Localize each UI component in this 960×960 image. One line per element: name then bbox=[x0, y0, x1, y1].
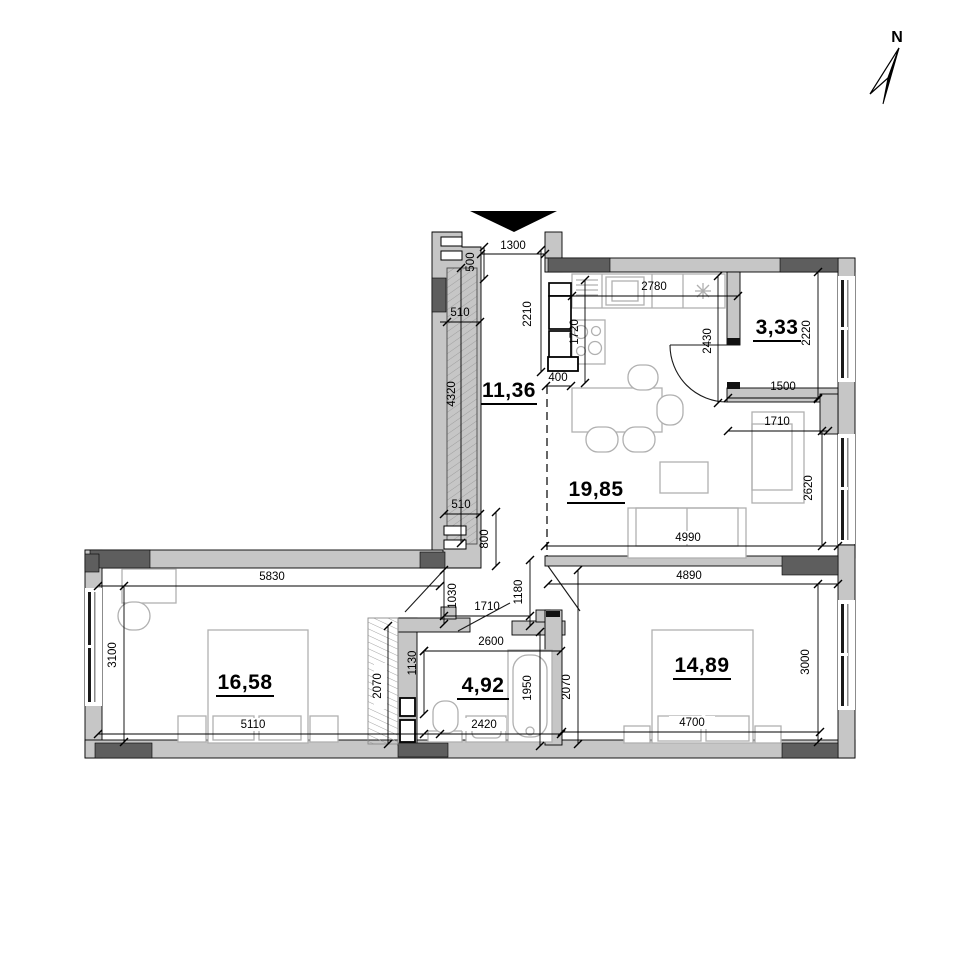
wall-dark-segment bbox=[782, 743, 838, 758]
svg-text:1300: 1300 bbox=[500, 240, 526, 252]
floor-plan: 1300 510 2780 1500 400 bbox=[0, 0, 960, 960]
wall-dark-segment bbox=[420, 552, 445, 568]
svg-text:800: 800 bbox=[479, 529, 491, 548]
wall-segment bbox=[820, 394, 838, 434]
desk-chair bbox=[118, 602, 150, 630]
dim-bath-right: 2070 bbox=[561, 566, 582, 748]
window-break bbox=[840, 653, 848, 656]
svg-text:1710: 1710 bbox=[474, 601, 500, 613]
window-break bbox=[86, 645, 94, 648]
chair bbox=[586, 427, 618, 452]
window-break bbox=[840, 327, 848, 330]
svg-text:1950: 1950 bbox=[522, 675, 534, 701]
wall-dark-segment bbox=[85, 554, 99, 572]
vent-opening bbox=[444, 526, 466, 535]
wall-dark-segment bbox=[782, 556, 838, 575]
svg-text:4700: 4700 bbox=[679, 717, 705, 729]
floor-plan-page: 1300 510 2780 1500 400 bbox=[0, 0, 960, 960]
svg-text:2430: 2430 bbox=[702, 328, 714, 354]
svg-text:2420: 2420 bbox=[471, 719, 497, 731]
svg-text:5110: 5110 bbox=[241, 719, 266, 731]
vent-opening bbox=[441, 237, 462, 246]
svg-text:1130: 1130 bbox=[407, 651, 419, 676]
svg-text:1030: 1030 bbox=[447, 583, 459, 609]
svg-text:4990: 4990 bbox=[675, 532, 701, 544]
asterisk-symbol bbox=[695, 283, 711, 299]
vent-opening bbox=[441, 251, 462, 260]
svg-text:2620: 2620 bbox=[803, 475, 815, 501]
room-label-storage: 3,33 bbox=[756, 316, 799, 339]
toilet-bowl bbox=[433, 701, 458, 733]
svg-text:2780: 2780 bbox=[641, 281, 667, 293]
bedroom1-furniture bbox=[118, 569, 338, 743]
svg-text:1710: 1710 bbox=[764, 416, 790, 428]
room-label-living: 19,85 bbox=[568, 478, 623, 501]
dim-hall-gap: 800 bbox=[479, 508, 500, 570]
duct-box bbox=[400, 720, 415, 742]
window-frame bbox=[94, 592, 96, 702]
north-label: N bbox=[891, 29, 903, 46]
dim-bedroom2-door: 1180 bbox=[513, 556, 534, 630]
room-label-bedroom1: 16,58 bbox=[217, 671, 272, 694]
room-label-bathroom: 4,92 bbox=[462, 674, 505, 697]
compass: N bbox=[870, 29, 903, 104]
nightstand bbox=[310, 716, 338, 742]
svg-text:2070: 2070 bbox=[372, 673, 384, 699]
dining-table bbox=[572, 388, 662, 432]
nightstand bbox=[624, 726, 650, 743]
wall-segment bbox=[727, 272, 740, 345]
dim-hall-right: 2210 bbox=[522, 246, 545, 376]
room-label-bedroom2: 14,89 bbox=[674, 654, 729, 677]
svg-text:2070: 2070 bbox=[561, 674, 573, 700]
svg-text:2600: 2600 bbox=[478, 636, 504, 648]
svg-text:1180: 1180 bbox=[513, 580, 525, 605]
dim-living-right: 2620 bbox=[803, 427, 826, 550]
svg-text:510: 510 bbox=[450, 307, 469, 319]
wall-dark-segment bbox=[780, 258, 838, 272]
nightstand bbox=[178, 716, 206, 742]
cabinet-end bbox=[548, 357, 578, 371]
wall-dark-segment bbox=[432, 278, 446, 312]
svg-text:3000: 3000 bbox=[800, 649, 812, 675]
room-label-hallway: 11,36 bbox=[482, 379, 536, 402]
entrance-arrow bbox=[470, 211, 557, 232]
north-arrow-outline bbox=[870, 48, 899, 94]
wall-dark-segment bbox=[398, 743, 448, 757]
svg-text:500: 500 bbox=[465, 252, 477, 271]
window-break bbox=[840, 487, 848, 490]
nightstand bbox=[755, 726, 781, 743]
door-jamb bbox=[727, 338, 740, 345]
dim-storage-right: 2220 bbox=[801, 268, 822, 403]
door-jamb bbox=[546, 611, 560, 617]
wall-dark-segment bbox=[95, 743, 152, 758]
svg-text:1500: 1500 bbox=[770, 381, 796, 393]
bedroom1-door-leaf bbox=[405, 571, 443, 612]
dim-entry-width: 1300 bbox=[477, 240, 549, 258]
chair bbox=[623, 427, 655, 452]
svg-text:1720: 1720 bbox=[569, 319, 581, 345]
dim-bedroom2-right: 3000 bbox=[800, 580, 822, 746]
dining-set bbox=[572, 365, 683, 452]
duct-box bbox=[400, 698, 415, 716]
svg-text:2220: 2220 bbox=[801, 320, 813, 346]
svg-text:4320: 4320 bbox=[446, 381, 458, 407]
svg-text:5830: 5830 bbox=[259, 571, 285, 583]
door-jamb bbox=[727, 382, 740, 389]
svg-text:3100: 3100 bbox=[107, 642, 119, 668]
svg-text:2210: 2210 bbox=[522, 301, 534, 327]
sink-basin bbox=[612, 281, 638, 301]
coffee-table bbox=[660, 462, 708, 493]
wall-dark-segment bbox=[548, 258, 610, 272]
chair bbox=[628, 365, 658, 390]
svg-text:4890: 4890 bbox=[676, 570, 702, 582]
svg-text:400: 400 bbox=[548, 372, 567, 384]
chair bbox=[657, 395, 683, 425]
